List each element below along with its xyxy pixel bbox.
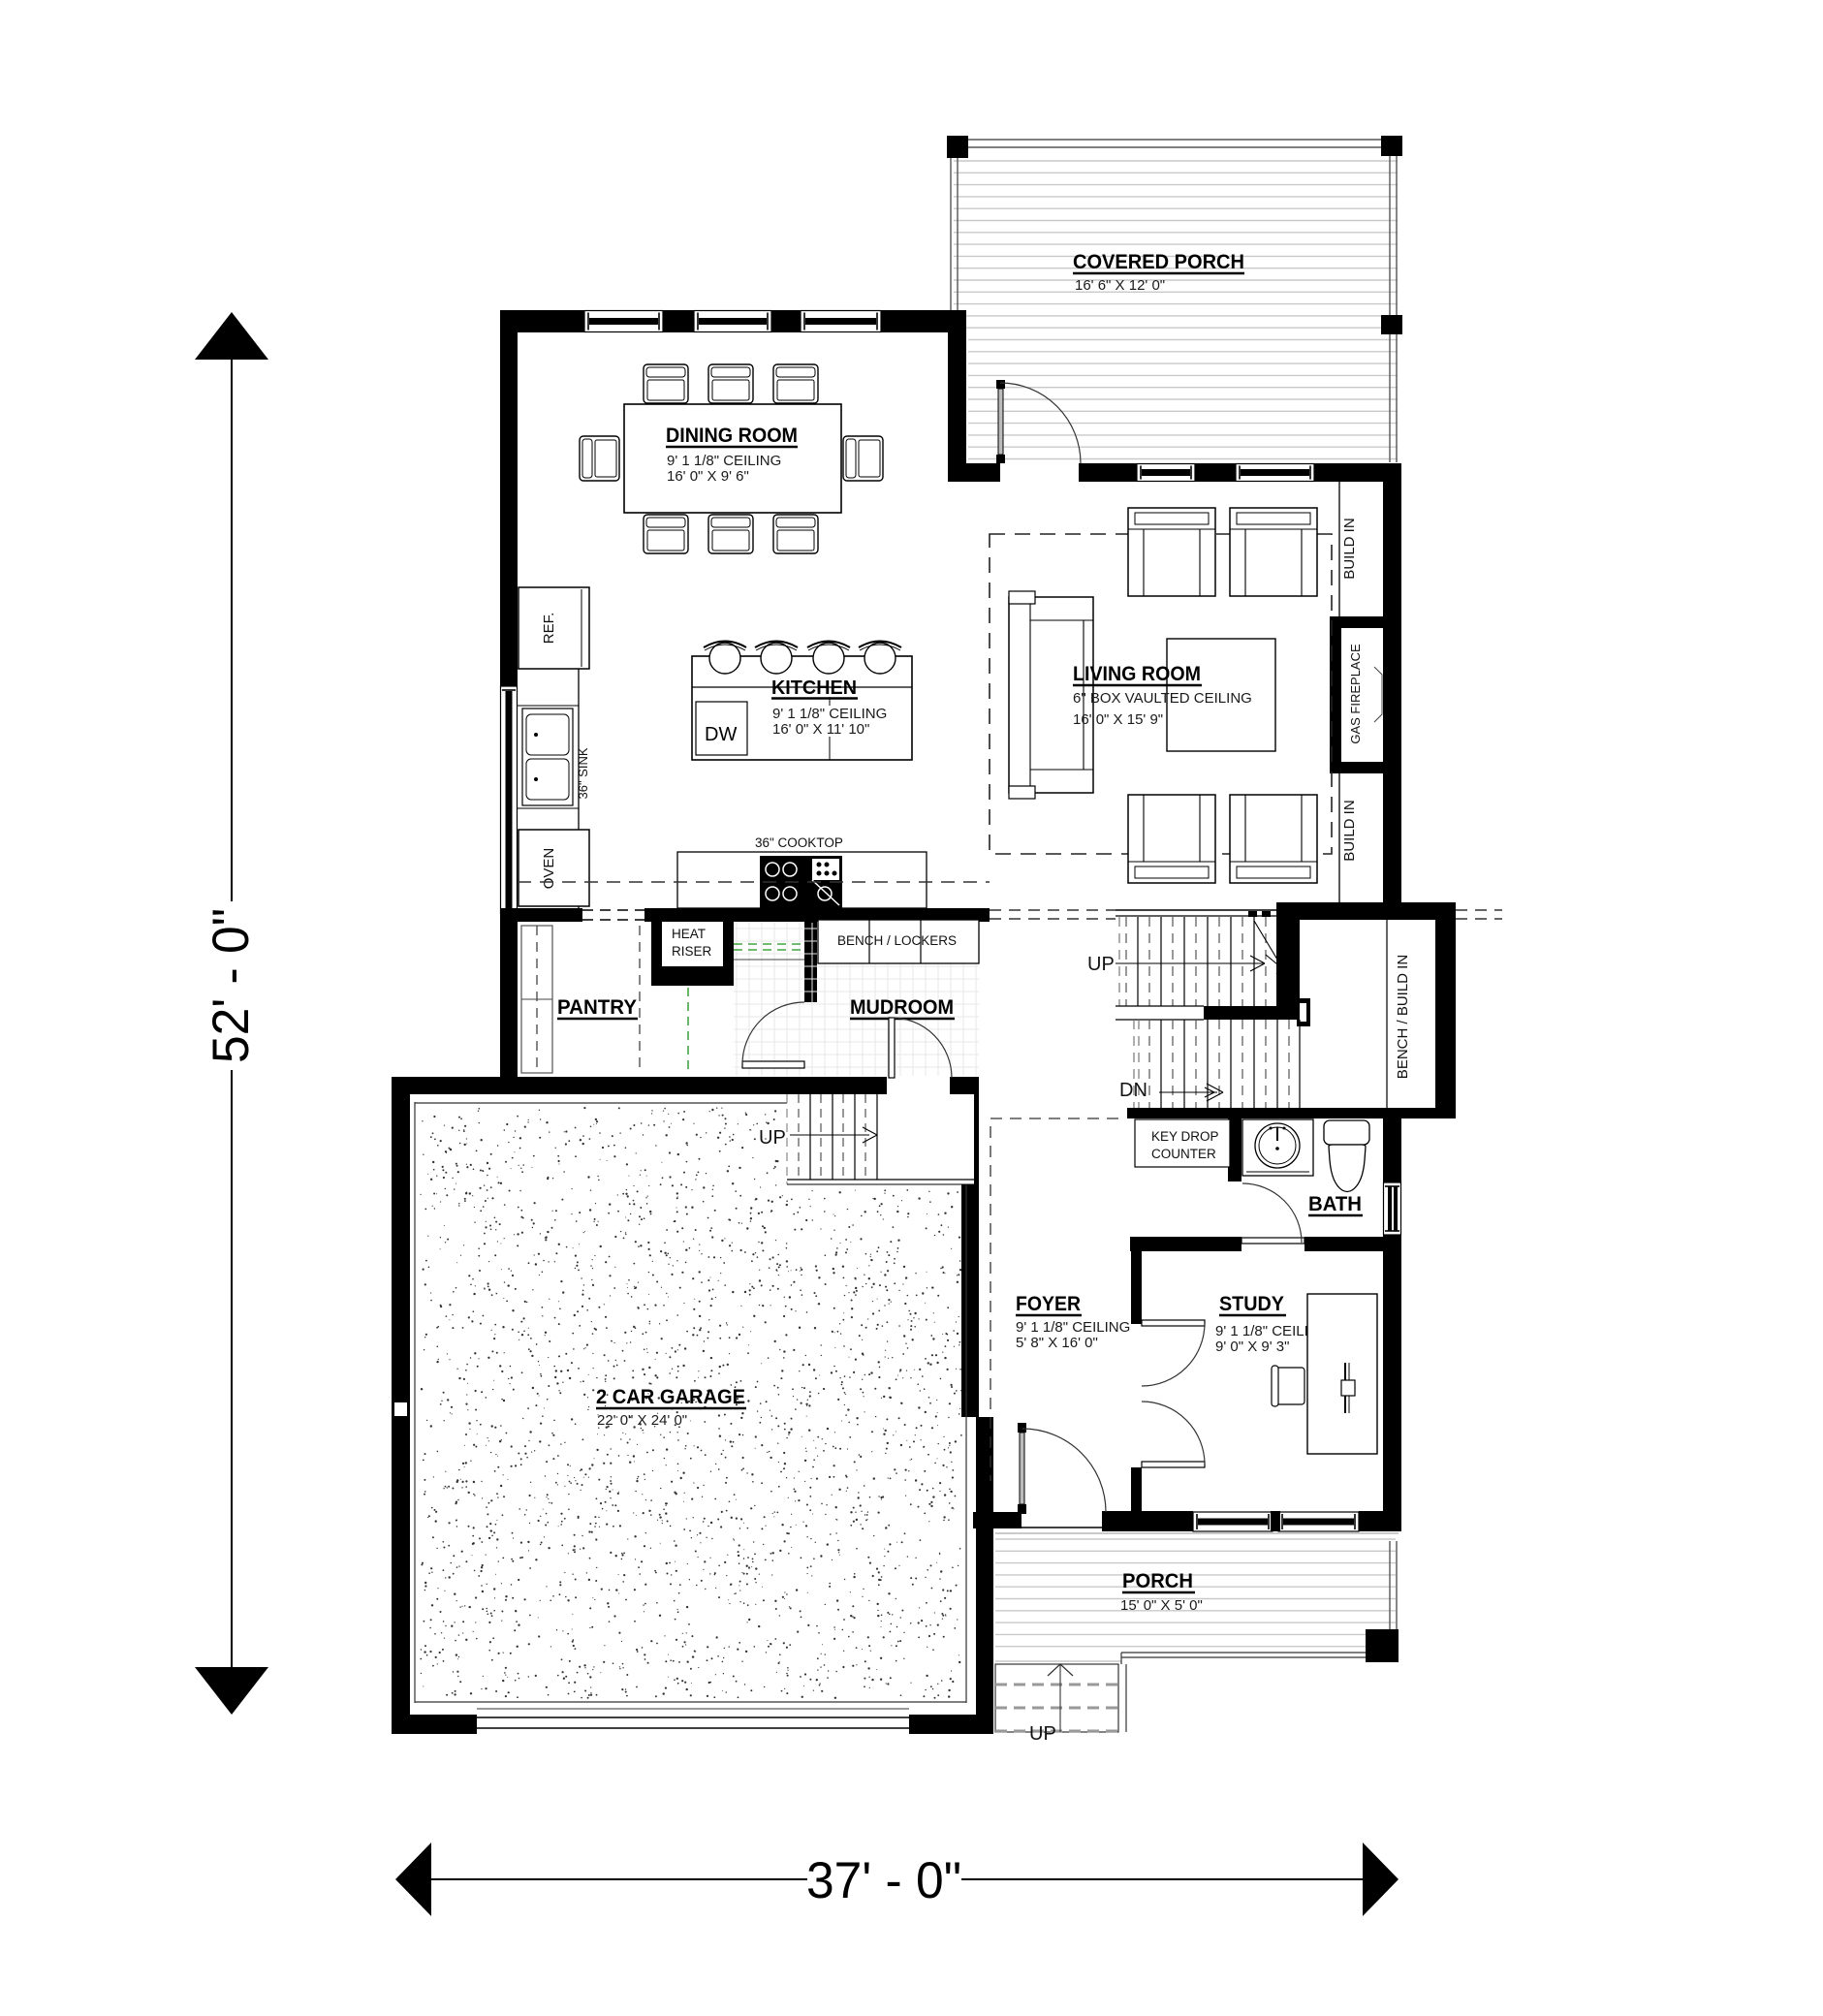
svg-text:UP: UP — [759, 1127, 786, 1149]
svg-text:DN: DN — [1119, 1080, 1147, 1101]
svg-text:BATH: BATH — [1308, 1193, 1362, 1215]
svg-text:KITCHEN: KITCHEN — [771, 677, 857, 699]
svg-text:16' 0" X 9' 6": 16' 0" X 9' 6" — [667, 468, 749, 485]
svg-text:UP: UP — [1029, 1723, 1056, 1745]
svg-text:36" SINK: 36" SINK — [576, 747, 590, 799]
svg-text:COUNTER: COUNTER — [1151, 1147, 1216, 1161]
svg-text:2 CAR GARAGE: 2 CAR GARAGE — [596, 1386, 745, 1408]
svg-text:BENCH / BUILD IN: BENCH / BUILD IN — [1395, 955, 1411, 1079]
svg-text:COVERED PORCH: COVERED PORCH — [1073, 251, 1244, 273]
svg-text:9' 1 1/8" CEILING: 9' 1 1/8" CEILING — [772, 706, 887, 722]
svg-text:BENCH / LOCKERS: BENCH / LOCKERS — [837, 933, 957, 948]
svg-text:MUDROOM: MUDROOM — [850, 996, 954, 1019]
svg-text:15' 0" X 5' 0": 15' 0" X 5' 0" — [1120, 1597, 1203, 1614]
svg-text:LIVING ROOM: LIVING ROOM — [1073, 663, 1201, 685]
svg-text:36" COOKTOP: 36" COOKTOP — [755, 835, 843, 850]
svg-text:UP: UP — [1087, 954, 1115, 975]
svg-text:9' 1 1/8" CEILING: 9' 1 1/8" CEILING — [1016, 1319, 1130, 1336]
svg-text:STUDY: STUDY — [1219, 1293, 1284, 1315]
svg-text:PORCH: PORCH — [1122, 1570, 1193, 1592]
svg-text:37' - 0": 37' - 0" — [806, 1852, 961, 1909]
svg-text:FOYER: FOYER — [1016, 1293, 1081, 1315]
svg-text:6" BOX VAULTED CEILING: 6" BOX VAULTED CEILING — [1073, 690, 1252, 707]
svg-text:5' 8" X 16' 0": 5' 8" X 16' 0" — [1016, 1335, 1098, 1351]
svg-text:16' 6" X 12' 0": 16' 6" X 12' 0" — [1075, 277, 1165, 294]
svg-text:REF.: REF. — [541, 613, 557, 645]
svg-text:BUILD IN: BUILD IN — [1341, 800, 1358, 861]
svg-text:OVEN: OVEN — [541, 848, 557, 890]
svg-text:9' 1 1/8" CEILING: 9' 1 1/8" CEILING — [667, 453, 781, 469]
svg-text:PANTRY: PANTRY — [557, 996, 637, 1019]
svg-text:HEAT: HEAT — [672, 927, 706, 941]
svg-text:RISER: RISER — [672, 944, 712, 959]
svg-text:DINING ROOM: DINING ROOM — [666, 425, 798, 447]
svg-text:9' 0" X 9' 3": 9' 0" X 9' 3" — [1215, 1339, 1289, 1355]
svg-text:16' 0" X 11' 10": 16' 0" X 11' 10" — [772, 721, 869, 738]
svg-text:22' 0" X 24' 0": 22' 0" X 24' 0" — [597, 1412, 687, 1429]
svg-text:52' - 0": 52' - 0" — [203, 908, 260, 1063]
svg-text:BUILD IN: BUILD IN — [1341, 518, 1358, 579]
svg-text:GAS FIREPLACE: GAS FIREPLACE — [1348, 644, 1363, 744]
svg-text:DW: DW — [705, 724, 737, 745]
svg-text:16' 0" X 15' 9": 16' 0" X 15' 9" — [1073, 711, 1163, 728]
svg-text:KEY DROP: KEY DROP — [1151, 1129, 1219, 1144]
